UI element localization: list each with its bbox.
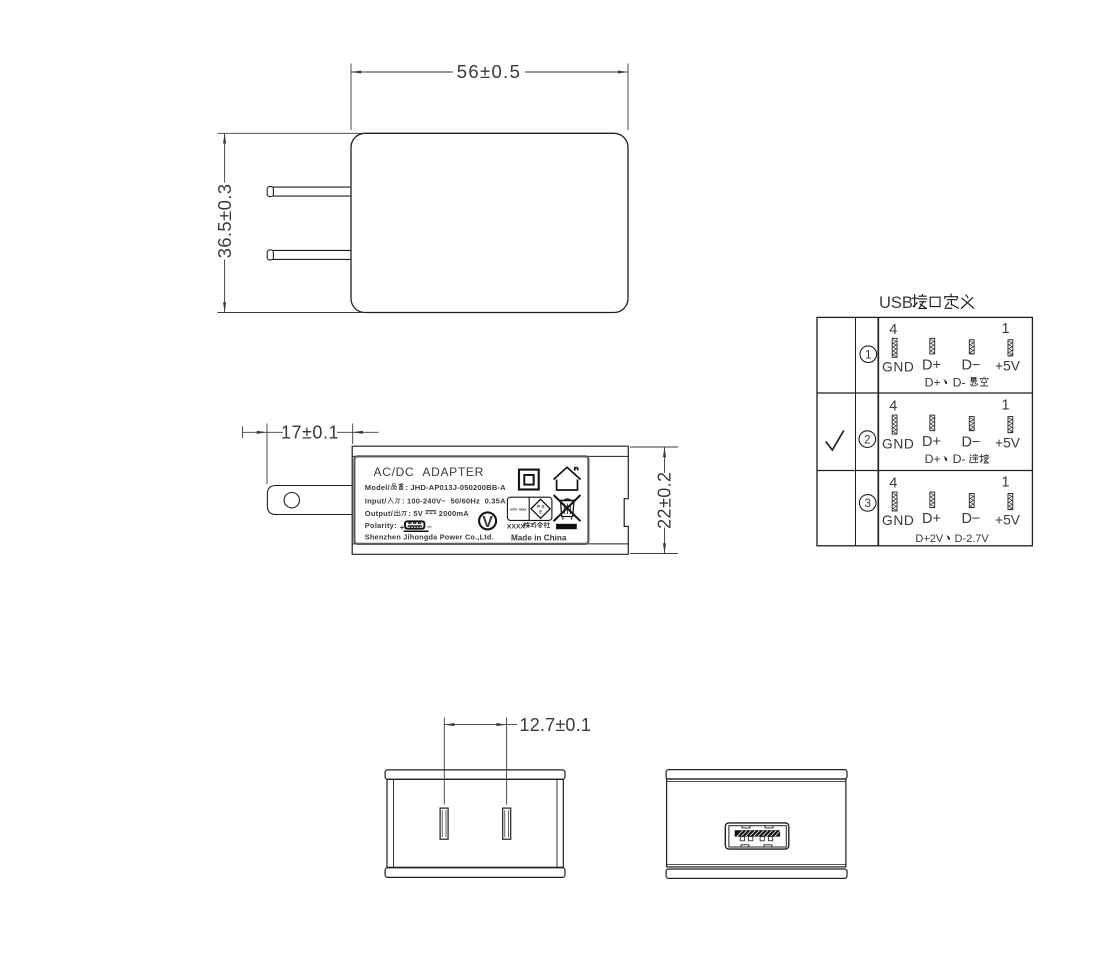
svg-text:GND: GND [882,360,914,375]
svg-text:36.5±0.3: 36.5±0.3 [214,184,235,259]
svg-text:1: 1 [1002,321,1010,337]
svg-text:D-2.7V: D-2.7V [955,533,990,545]
svg-text:4: 4 [889,399,897,415]
svg-text:D−: D− [962,434,981,450]
svg-text:2000mA: 2000mA [439,509,469,518]
svg-text:Made in China: Made in China [511,534,567,543]
svg-text:USB: USB [879,294,913,312]
svg-text:D+2V: D+2V [915,533,943,545]
svg-text:: JHD-AP013J-050200BB-A: : JHD-AP013J-050200BB-A [405,483,506,492]
svg-text:Polarity:: Polarity: [365,521,397,530]
svg-text:1: 1 [865,349,871,361]
svg-text:12.7±0.1: 12.7±0.1 [520,715,592,735]
svg-text:GND: GND [882,436,914,451]
svg-text:D+: D+ [922,357,941,373]
svg-text:D+: D+ [925,452,941,466]
svg-text:2: 2 [864,434,870,446]
svg-text:D-: D- [953,452,966,466]
svg-text:AC/DC ADAPTER: AC/DC ADAPTER [374,465,484,479]
svg-text:V: V [482,514,493,531]
svg-text:D−: D− [962,358,981,374]
svg-text:Shenzhen Jihongda Power Co.,Lt: Shenzhen Jihongda Power Co.,Ltd. [365,533,494,542]
svg-text:E: E [539,509,542,514]
svg-text:D+: D+ [925,375,941,389]
svg-text:D+: D+ [922,511,941,527]
svg-text:P S: P S [537,504,544,509]
svg-text:1: 1 [1002,475,1010,491]
svg-text:XXXX: XXXX [507,523,526,530]
svg-text:−: − [427,522,432,531]
svg-text:56±0.5: 56±0.5 [457,61,522,82]
svg-text:Input/: Input/ [365,497,387,506]
svg-text:1: 1 [1002,398,1010,414]
svg-text:+5V: +5V [995,436,1021,451]
svg-text:+5V: +5V [995,512,1021,527]
svg-text:22±0.2: 22±0.2 [655,472,675,529]
svg-text:GND: GND [882,513,914,528]
svg-text:Model/: Model/ [365,483,391,492]
svg-text:D-: D- [953,375,966,389]
svg-text:4: 4 [889,476,897,492]
svg-text:xOv max: xOv max [510,506,527,511]
svg-text:3: 3 [864,498,870,510]
svg-text:Output/: Output/ [365,509,394,518]
svg-text:: 100-240V~ 50/60Hz 0.35A: : 100-240V~ 50/60Hz 0.35A [402,497,506,506]
svg-text:D−: D− [962,511,981,527]
svg-text:+5V: +5V [995,359,1021,374]
svg-text:17±0.1: 17±0.1 [281,423,339,443]
svg-text:D+: D+ [922,434,941,450]
svg-text:4: 4 [889,322,897,338]
svg-text:: 5V: : 5V [408,509,423,518]
